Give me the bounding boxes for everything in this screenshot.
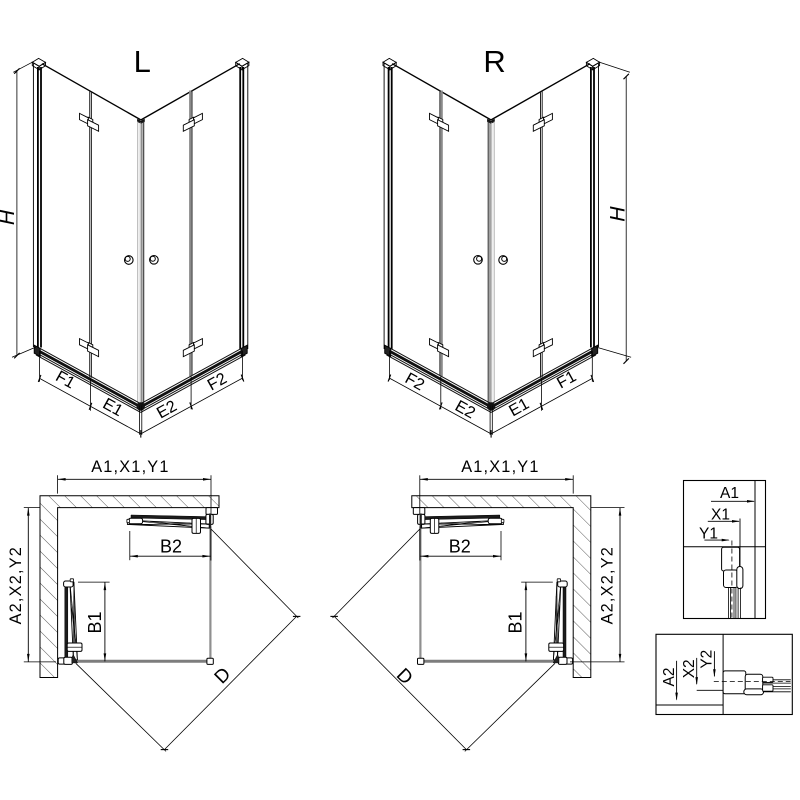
- svg-text:B1: B1: [85, 611, 105, 633]
- svg-text:A2,X2,Y2: A2,X2,Y2: [598, 546, 616, 624]
- svg-text:Y2: Y2: [699, 650, 716, 669]
- svg-text:B2: B2: [449, 537, 471, 557]
- svg-text:X2: X2: [681, 659, 698, 678]
- svg-text:B1: B1: [506, 611, 526, 633]
- svg-text:L: L: [134, 44, 151, 79]
- svg-text:A1: A1: [720, 485, 739, 502]
- svg-text:B2: B2: [160, 537, 182, 557]
- svg-text:X1: X1: [711, 506, 730, 523]
- svg-text:A1,X1,Y1: A1,X1,Y1: [91, 458, 169, 476]
- svg-text:A2: A2: [661, 668, 678, 687]
- svg-text:R: R: [483, 44, 505, 79]
- svg-text:A1,X1,Y1: A1,X1,Y1: [461, 458, 539, 476]
- svg-text:A2,X2,Y2: A2,X2,Y2: [7, 546, 25, 624]
